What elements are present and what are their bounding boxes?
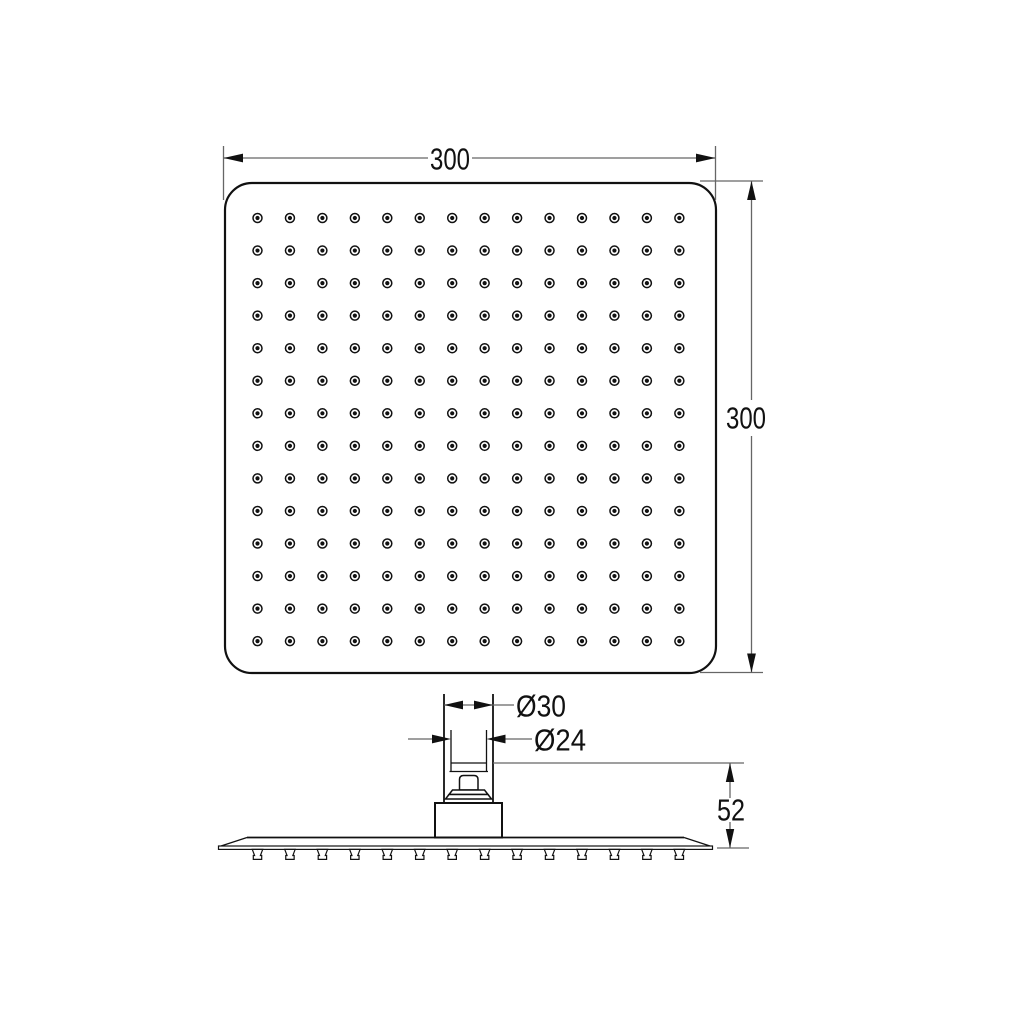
nozzle-center	[547, 476, 551, 480]
side-nozzle	[382, 849, 392, 859]
nozzle-center	[450, 574, 454, 578]
nozzle-center	[255, 541, 259, 545]
nozzle-center	[645, 281, 649, 285]
side-nozzle	[512, 849, 522, 859]
nozzle-center	[483, 248, 487, 252]
nozzle-center	[580, 216, 584, 220]
nozzle-center	[612, 281, 616, 285]
nozzle-center	[612, 444, 616, 448]
nozzle-center	[288, 248, 292, 252]
connector-collar-lower	[446, 795, 492, 800]
nozzle-center	[645, 444, 649, 448]
plate-right-bevel	[684, 838, 710, 847]
nozzle-center	[645, 476, 649, 480]
nozzle-center	[515, 444, 519, 448]
nozzle-center	[677, 314, 681, 318]
nozzle-center	[320, 639, 324, 643]
nozzle-center	[353, 346, 357, 350]
face-view	[225, 183, 716, 673]
nozzle-center	[677, 476, 681, 480]
nozzle-center	[612, 476, 616, 480]
nozzle-center	[612, 607, 616, 611]
drawing-svg: 300 300	[0, 0, 1024, 1024]
nozzle-center	[515, 574, 519, 578]
nozzle-center	[612, 248, 616, 252]
nozzle-center	[288, 281, 292, 285]
nozzle-center	[320, 444, 324, 448]
nozzle-center	[450, 281, 454, 285]
nozzle-center	[515, 541, 519, 545]
nozzle-center	[418, 476, 422, 480]
nozzle-center	[418, 509, 422, 513]
nozzle-center	[547, 509, 551, 513]
nozzle-center	[677, 216, 681, 220]
nozzle-center	[320, 607, 324, 611]
nozzle-center	[612, 541, 616, 545]
nozzle-center	[255, 314, 259, 318]
nozzle-center	[677, 248, 681, 252]
nozzle-center	[677, 411, 681, 415]
side-nozzle	[252, 849, 262, 859]
nozzle-center	[645, 574, 649, 578]
nozzle-center	[320, 541, 324, 545]
nozzle-center	[288, 476, 292, 480]
nozzle-center	[483, 281, 487, 285]
nozzle-center	[353, 574, 357, 578]
arrow-down-icon	[726, 829, 734, 848]
nozzle-center	[483, 346, 487, 350]
nozzle-center	[418, 607, 422, 611]
inner-diameter-dimension: Ø24	[408, 723, 586, 758]
nozzle-center	[645, 509, 649, 513]
nozzle-center	[353, 411, 357, 415]
nozzle-center	[580, 346, 584, 350]
nozzle-center	[547, 314, 551, 318]
nozzle-center	[483, 379, 487, 383]
nozzle-center	[547, 216, 551, 220]
technical-drawing-shower-head: 300 300	[0, 0, 1024, 1024]
nozzle-center	[677, 444, 681, 448]
nozzle-center	[547, 541, 551, 545]
nozzle-center	[645, 314, 649, 318]
side-nozzle	[544, 849, 554, 859]
nozzle-center	[483, 216, 487, 220]
nozzle-center	[255, 574, 259, 578]
side-nozzle	[642, 849, 652, 859]
nozzle-center	[515, 216, 519, 220]
nozzle-center	[450, 639, 454, 643]
nozzle-grid	[253, 214, 684, 646]
nozzle-center	[450, 509, 454, 513]
plate-left-bevel	[221, 838, 247, 847]
arrow-right-icon	[432, 735, 451, 744]
nozzle-center	[385, 574, 389, 578]
connector-nut	[460, 776, 479, 791]
outer-diameter-dimension: Ø30	[444, 689, 566, 724]
nozzle-center	[288, 379, 292, 383]
nozzle-center	[255, 248, 259, 252]
nozzle-center	[385, 639, 389, 643]
side-nozzle-row	[252, 849, 684, 859]
arrow-left-icon	[487, 735, 506, 744]
nozzle-center	[580, 509, 584, 513]
nozzle-center	[612, 509, 616, 513]
nozzle-center	[320, 411, 324, 415]
nozzle-center	[288, 541, 292, 545]
nozzle-center	[645, 541, 649, 545]
nozzle-center	[385, 216, 389, 220]
nozzle-center	[645, 639, 649, 643]
width-dimension-label: 300	[430, 142, 470, 177]
nozzle-center	[450, 379, 454, 383]
nozzle-center	[418, 379, 422, 383]
nozzle-center	[450, 607, 454, 611]
nozzle-center	[353, 509, 357, 513]
nozzle-center	[353, 216, 357, 220]
nozzle-center	[385, 346, 389, 350]
nozzle-center	[547, 444, 551, 448]
nozzle-center	[580, 411, 584, 415]
arrow-up-icon	[747, 181, 756, 200]
nozzle-center	[450, 541, 454, 545]
side-nozzle	[479, 849, 489, 859]
nozzle-center	[483, 639, 487, 643]
nozzle-center	[580, 248, 584, 252]
nozzle-center	[677, 346, 681, 350]
nozzle-center	[612, 314, 616, 318]
nozzle-center	[483, 444, 487, 448]
nozzle-center	[385, 281, 389, 285]
nozzle-center	[677, 639, 681, 643]
nozzle-center	[385, 248, 389, 252]
outer-diameter-label: Ø30	[516, 689, 566, 724]
nozzle-center	[580, 541, 584, 545]
nozzle-center	[612, 379, 616, 383]
nozzle-center	[547, 379, 551, 383]
nozzle-center	[418, 541, 422, 545]
nozzle-center	[320, 574, 324, 578]
height-dimension: 300	[700, 181, 766, 673]
nozzle-center	[515, 346, 519, 350]
nozzle-center	[320, 248, 324, 252]
nozzle-center	[547, 248, 551, 252]
nozzle-center	[385, 314, 389, 318]
nozzle-center	[580, 379, 584, 383]
nozzle-center	[288, 607, 292, 611]
nozzle-center	[645, 411, 649, 415]
nozzle-center	[483, 411, 487, 415]
nozzle-center	[515, 509, 519, 513]
nozzle-center	[547, 281, 551, 285]
nozzle-center	[288, 509, 292, 513]
nozzle-center	[418, 574, 422, 578]
nozzle-center	[418, 216, 422, 220]
nozzle-center	[385, 541, 389, 545]
nozzle-center	[288, 346, 292, 350]
side-nozzle	[577, 849, 587, 859]
nozzle-center	[288, 216, 292, 220]
side-nozzle	[447, 849, 457, 859]
nozzle-center	[580, 574, 584, 578]
shower-head-plate-outline	[225, 183, 716, 673]
nozzle-center	[677, 607, 681, 611]
nozzle-center	[288, 411, 292, 415]
nozzle-center	[320, 346, 324, 350]
nozzle-center	[255, 639, 259, 643]
nozzle-center	[288, 639, 292, 643]
nozzle-center	[255, 379, 259, 383]
nozzle-center	[645, 379, 649, 383]
inner-diameter-label: Ø24	[534, 723, 586, 758]
arrow-left-icon	[224, 154, 244, 163]
mounting-height-dimension: 52	[493, 763, 749, 848]
nozzle-center	[645, 346, 649, 350]
nozzle-center	[515, 639, 519, 643]
nozzle-center	[418, 346, 422, 350]
nozzle-center	[580, 639, 584, 643]
nozzle-center	[450, 248, 454, 252]
nozzle-center	[418, 639, 422, 643]
nozzle-center	[418, 411, 422, 415]
nozzle-center	[353, 607, 357, 611]
nozzle-center	[515, 379, 519, 383]
nozzle-center	[515, 476, 519, 480]
nozzle-center	[255, 444, 259, 448]
nozzle-center	[580, 281, 584, 285]
nozzle-center	[320, 314, 324, 318]
nozzle-center	[612, 346, 616, 350]
height-dimension-label: 300	[726, 401, 766, 436]
nozzle-center	[320, 379, 324, 383]
nozzle-center	[612, 216, 616, 220]
nozzle-center	[483, 509, 487, 513]
nozzle-center	[580, 444, 584, 448]
nozzle-center	[547, 346, 551, 350]
nozzle-center	[385, 476, 389, 480]
side-nozzle	[285, 849, 295, 859]
nozzle-center	[255, 216, 259, 220]
nozzle-center	[353, 476, 357, 480]
nozzle-center	[515, 314, 519, 318]
nozzle-center	[385, 509, 389, 513]
nozzle-center	[677, 281, 681, 285]
nozzle-center	[320, 476, 324, 480]
side-view	[219, 694, 713, 859]
nozzle-center	[515, 248, 519, 252]
nozzle-center	[483, 476, 487, 480]
nozzle-center	[450, 476, 454, 480]
nozzle-center	[515, 411, 519, 415]
nozzle-center	[255, 509, 259, 513]
nozzle-center	[255, 607, 259, 611]
nozzle-center	[645, 607, 649, 611]
nozzle-center	[353, 314, 357, 318]
nozzle-center	[353, 379, 357, 383]
side-nozzle	[609, 849, 619, 859]
arrow-right-icon	[696, 154, 716, 163]
arrow-right-icon	[474, 701, 493, 710]
nozzle-center	[645, 216, 649, 220]
side-nozzle	[350, 849, 360, 859]
nozzle-center	[450, 216, 454, 220]
side-nozzle	[674, 849, 684, 859]
nozzle-center	[612, 574, 616, 578]
nozzle-center	[612, 639, 616, 643]
nozzle-center	[353, 248, 357, 252]
arrow-down-icon	[747, 654, 756, 673]
nozzle-center	[255, 476, 259, 480]
nozzle-center	[255, 346, 259, 350]
nozzle-center	[385, 607, 389, 611]
nozzle-center	[547, 639, 551, 643]
nozzle-center	[612, 411, 616, 415]
nozzle-center	[353, 444, 357, 448]
nozzle-center	[483, 314, 487, 318]
nozzle-center	[547, 574, 551, 578]
nozzle-center	[580, 607, 584, 611]
nozzle-center	[547, 607, 551, 611]
nozzle-center	[418, 314, 422, 318]
side-nozzle	[317, 849, 327, 859]
nozzle-center	[320, 509, 324, 513]
nozzle-center	[515, 607, 519, 611]
nozzle-center	[255, 281, 259, 285]
side-nozzle	[415, 849, 425, 859]
nozzle-center	[353, 639, 357, 643]
nozzle-center	[450, 411, 454, 415]
nozzle-center	[483, 607, 487, 611]
nozzle-center	[418, 281, 422, 285]
nozzle-center	[418, 444, 422, 448]
mounting-height-label: 52	[717, 793, 745, 828]
nozzle-center	[418, 248, 422, 252]
nozzle-center	[385, 444, 389, 448]
nozzle-center	[385, 379, 389, 383]
nozzle-center	[385, 411, 389, 415]
nozzle-center	[353, 541, 357, 545]
width-dimension: 300	[224, 142, 716, 201]
nozzle-center	[288, 574, 292, 578]
arrow-left-icon	[444, 701, 463, 710]
nozzle-center	[677, 379, 681, 383]
mounting-block	[435, 803, 502, 838]
nozzle-center	[450, 444, 454, 448]
nozzle-center	[483, 574, 487, 578]
nozzle-center	[677, 541, 681, 545]
arrow-up-icon	[726, 763, 734, 782]
nozzle-center	[483, 541, 487, 545]
nozzle-center	[450, 314, 454, 318]
nozzle-center	[515, 281, 519, 285]
nozzle-center	[288, 444, 292, 448]
nozzle-center	[255, 411, 259, 415]
nozzle-center	[320, 216, 324, 220]
nozzle-center	[450, 346, 454, 350]
nozzle-center	[547, 411, 551, 415]
nozzle-center	[580, 476, 584, 480]
nozzle-center	[645, 248, 649, 252]
nozzle-center	[580, 314, 584, 318]
nozzle-center	[677, 509, 681, 513]
nozzle-center	[320, 281, 324, 285]
nozzle-center	[353, 281, 357, 285]
nozzle-center	[677, 574, 681, 578]
nozzle-center	[288, 314, 292, 318]
